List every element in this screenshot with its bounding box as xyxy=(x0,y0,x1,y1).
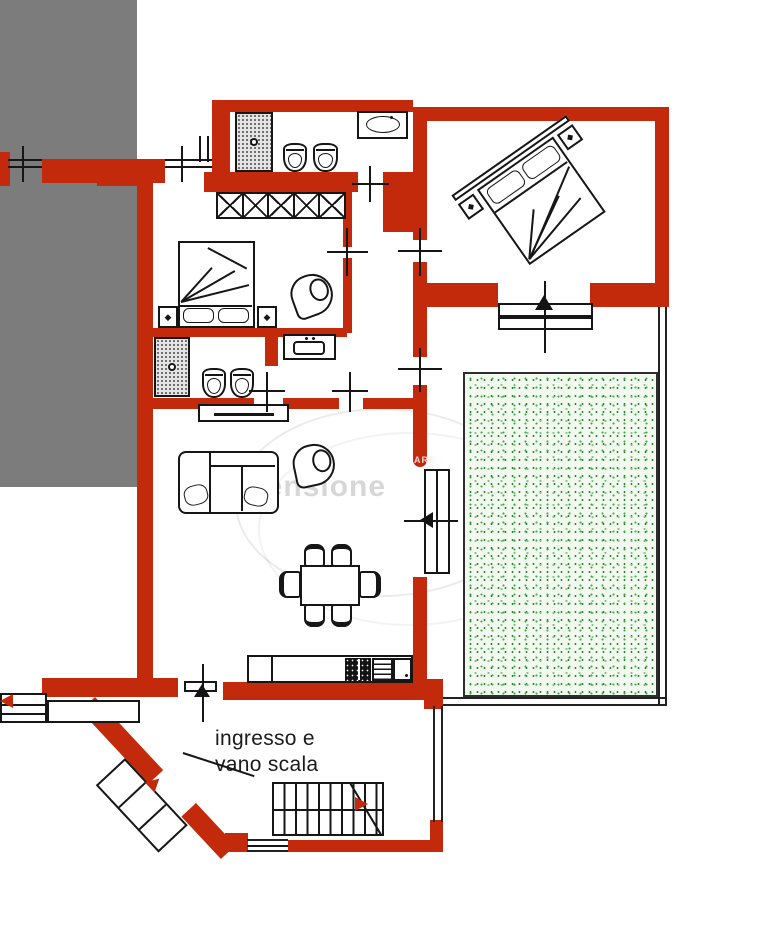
nightstand-marker-icon: ◆ xyxy=(160,308,176,326)
faucet-icon xyxy=(405,674,408,677)
dining-chair xyxy=(331,604,352,627)
window-cross xyxy=(419,348,421,392)
nightstand-marker-icon: ◆ xyxy=(259,308,275,326)
dining-chair xyxy=(331,544,352,567)
window-marker xyxy=(165,166,212,168)
window-cross xyxy=(181,146,183,182)
armchair xyxy=(285,268,339,322)
wall-segment xyxy=(283,398,339,409)
blanket-fold-line xyxy=(208,247,248,269)
window-marker xyxy=(8,159,42,161)
window-cross xyxy=(327,251,368,253)
window-line xyxy=(247,845,288,847)
wardrobe-cell-icon xyxy=(320,194,344,217)
pillow-icon xyxy=(183,308,214,323)
bed-line xyxy=(180,305,252,307)
toilet xyxy=(230,368,254,398)
entry-arrow-icon xyxy=(420,512,433,528)
shower-drain-icon xyxy=(168,363,176,371)
door-marker xyxy=(249,390,285,392)
bidet xyxy=(283,143,307,172)
dining-chair xyxy=(279,571,301,598)
nightstand-marker-icon: ◆ xyxy=(461,196,482,217)
shower xyxy=(154,337,190,397)
sink xyxy=(357,111,408,139)
sink-drainer-icon xyxy=(372,658,393,681)
faucet-icon xyxy=(390,116,393,119)
stair-direction-arrow-icon xyxy=(355,797,368,811)
dining-chair xyxy=(304,604,325,627)
step-line xyxy=(118,782,146,808)
sideboard-line xyxy=(214,413,274,416)
blanket-fold-line xyxy=(181,270,235,302)
bidet xyxy=(202,368,226,398)
dining-chair xyxy=(304,544,325,567)
wall-segment xyxy=(430,820,443,852)
nightstand: ◆ xyxy=(158,306,178,328)
window-cross xyxy=(398,368,442,370)
wall-segment xyxy=(225,833,248,852)
door-axis-line xyxy=(544,281,546,353)
wall-segment xyxy=(223,682,443,700)
pillow-icon xyxy=(218,308,249,323)
entrance-label-line1: ingresso e xyxy=(215,726,318,752)
blanket-fold-line xyxy=(529,166,569,259)
dining-chair xyxy=(359,571,381,598)
sink-basin-icon xyxy=(293,341,325,355)
wall-segment xyxy=(204,172,358,192)
toilet xyxy=(313,143,338,172)
counter-divider xyxy=(271,657,273,681)
faucet-icon xyxy=(305,337,308,340)
window-cross xyxy=(22,146,24,182)
wall-segment xyxy=(0,152,10,186)
wardrobe-cell-icon xyxy=(295,194,321,217)
door-marker xyxy=(332,390,368,392)
wall-segment xyxy=(655,107,669,307)
window-marker xyxy=(247,839,288,852)
wall-segment xyxy=(288,840,432,852)
wall-segment xyxy=(413,283,498,307)
entrance-label: ingresso e vano scala xyxy=(215,726,318,778)
window-cross xyxy=(398,250,442,252)
wall-segment xyxy=(265,332,278,366)
wardrobe-cell-icon xyxy=(269,194,295,217)
watermark-wall-text: ARE xyxy=(414,455,436,465)
wall-segment xyxy=(590,283,669,307)
wall-segment xyxy=(42,678,178,697)
window-marker xyxy=(433,706,443,822)
adjacent-building-block xyxy=(0,0,137,487)
window-marker xyxy=(165,159,212,161)
sink-basin-icon xyxy=(366,116,400,133)
dining-table xyxy=(300,565,360,606)
terrace-boundary-line xyxy=(443,697,667,706)
wardrobe-cell-icon xyxy=(244,194,270,217)
faucet-icon xyxy=(312,337,315,340)
stove xyxy=(345,658,371,681)
entrance-label-line2: vano scala xyxy=(215,752,318,778)
nightstand: ◆ xyxy=(557,124,583,150)
kitchen-sink xyxy=(393,658,412,681)
blanket-fold-line xyxy=(181,284,249,302)
exit-arrow-icon xyxy=(0,694,13,708)
door-marker xyxy=(266,372,268,412)
wall-segment xyxy=(413,107,669,121)
sofa-line xyxy=(241,465,243,511)
shower-drain-icon xyxy=(250,138,258,146)
nightstand-marker-icon: ◆ xyxy=(560,127,581,148)
wardrobe xyxy=(216,192,346,219)
wall-segment xyxy=(137,176,153,686)
window-cross xyxy=(352,183,389,185)
sideboard xyxy=(198,404,289,422)
garden-area xyxy=(463,372,658,697)
nightstand: ◆ xyxy=(257,306,277,328)
wall-segment xyxy=(413,577,427,682)
nightstand: ◆ xyxy=(458,193,484,219)
floor-plan: censione ARE xyxy=(0,0,768,947)
window-marker xyxy=(8,166,42,168)
wardrobe-cell-icon xyxy=(218,194,244,217)
door-marker xyxy=(349,372,351,412)
terrace-boundary-line xyxy=(658,307,667,706)
double-bed xyxy=(477,136,606,265)
wall-segment xyxy=(413,107,427,240)
wall-segment xyxy=(153,328,277,337)
shower xyxy=(235,112,273,172)
rotated-bed-group: ◆ ◆ xyxy=(451,115,624,279)
sofa xyxy=(178,451,279,514)
exterior-landing xyxy=(47,700,140,723)
entry-arrow-icon xyxy=(535,295,553,310)
entry-arrow-icon xyxy=(194,684,210,697)
step-line xyxy=(139,804,167,830)
step-line xyxy=(2,713,45,715)
window-cross xyxy=(419,228,421,276)
blanket-fold-line xyxy=(528,197,581,259)
vanity-sink xyxy=(283,334,336,360)
sofa-line xyxy=(209,453,211,512)
double-bed xyxy=(178,241,255,328)
